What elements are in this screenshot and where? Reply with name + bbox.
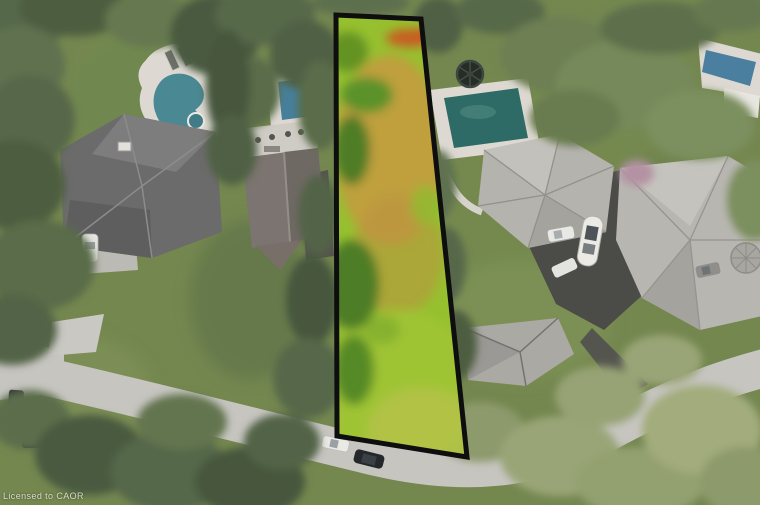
watermark-text: Licensed to CAOR: [3, 492, 84, 501]
hot-tub: [188, 113, 204, 129]
aerial-photo: Licensed to CAOR: [0, 0, 760, 505]
pool-reflection: [460, 105, 496, 119]
chimney: [118, 142, 131, 151]
aerial-photo-canvas: [0, 0, 760, 505]
trampoline: [457, 61, 483, 87]
pink-tree: [620, 160, 654, 186]
